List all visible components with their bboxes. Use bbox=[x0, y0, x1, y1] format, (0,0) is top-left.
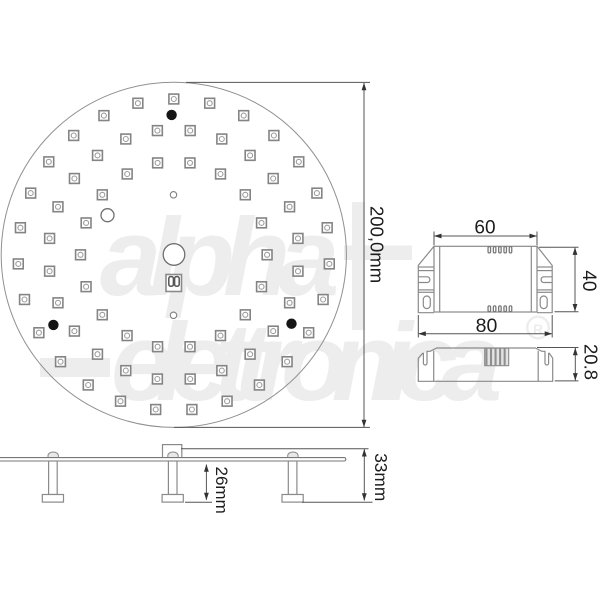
svg-text:R: R bbox=[533, 321, 543, 337]
svg-text:40: 40 bbox=[578, 270, 599, 291]
svg-text:33mm: 33mm bbox=[371, 453, 391, 501]
svg-text:elettronica: elettronica bbox=[111, 301, 499, 424]
svg-text:80: 80 bbox=[476, 315, 498, 337]
svg-text:60: 60 bbox=[474, 218, 495, 239]
svg-text:26mm: 26mm bbox=[212, 467, 231, 514]
svg-text:200,0mm: 200,0mm bbox=[367, 206, 388, 283]
svg-text:20.8: 20.8 bbox=[581, 344, 600, 380]
